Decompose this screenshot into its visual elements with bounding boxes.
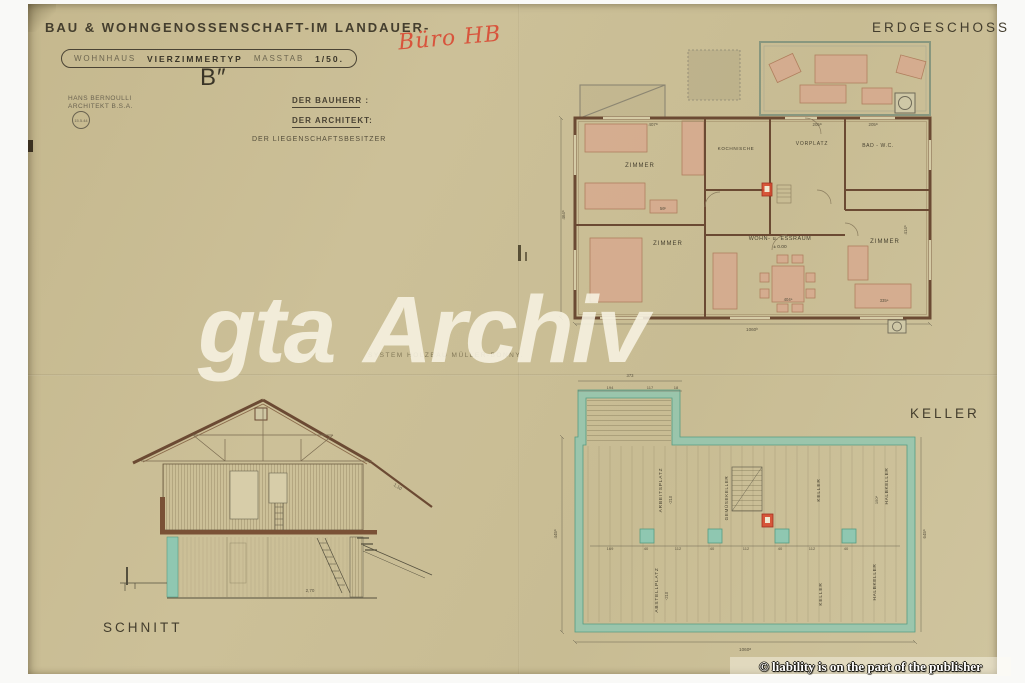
dim-label: 645ᵃ [922,529,927,538]
besitzer-signature-line: DER LIEGENSCHAFTSBESITZER [252,136,386,143]
dim-label: 407ᵃ [649,122,658,127]
dim-label: 1060ᵃ [739,647,751,652]
variant-letter: B″ [200,64,227,92]
wohnhaus-label: WOHNHAUS [74,54,136,63]
scanned-drawing-page: { "colors": { "paper": "#c9bd95", "ink":… [0,0,1025,683]
architect-name: HANS BERNOULLI [68,95,133,103]
depth-annotation: -210 [664,591,669,600]
scale-value: 1/50. [315,54,344,64]
dim-label: 112 [809,546,816,551]
dim-label: 335ᵃ [880,298,889,303]
dim-label: 414ᵃ [903,225,908,234]
keller-stair [732,467,762,511]
room-label-gemuesekeller: GEMÜSEKELLER [723,476,729,521]
date-stamp: 15.5.44 [72,111,90,129]
schnitt-section: 1,10 2,70 [105,385,435,645]
room-label-halbkeller-s: HALBKELLER [872,564,878,601]
architekt-signature-line: DER ARCHITEKT: [292,116,373,125]
eg-cellar-stair [777,185,791,203]
gta-archiv-watermark: gta Archiv [198,276,647,385]
eg-exterior-fixture [888,320,906,333]
dim-label: 2,70 [306,588,315,593]
dim-label: 18 [674,385,679,390]
dim-label: 404ᵃ [784,297,793,302]
dim-label: 150ᵃ [874,495,879,504]
sheet-title: BAU & WOHNGENOSSENSCHAFT-IM LANDAUER- [45,20,430,35]
fold-registration-mark [518,245,521,261]
room-label-bad-wc: BAD - W.C. [862,143,894,149]
room-label-kochnische: KOCHNISCHE [718,146,755,151]
room-label-zimmer-se: ZIMMER [870,239,900,245]
fold-registration-mark [525,252,527,261]
room-label-keller-s: KELLER [818,582,824,605]
sheet-edge-notch [28,140,33,152]
bauherr-signature-line: DER BAUHERR : [292,96,369,105]
keller-heater [762,514,773,527]
room-label-halbkeller-n: HALBKELLER [884,468,890,505]
dim-label: 194 [607,385,614,390]
keller-plan: 373 194 117 18 ARBEITSPLATZ -210 GEMÜSEK… [550,368,930,668]
dim-label: 205ᵃ [869,122,878,127]
section-main-floor [163,464,363,530]
eg-porches [580,42,930,118]
dim-label: 205ᵃ [813,122,822,127]
dim-label: 40 [644,546,649,551]
room-label-abstellplatz: ABSTELLPLATZ [654,567,660,612]
publisher-note: © liability is on the part of the publis… [730,657,1011,676]
room-label-wohn-essraum: WOHN- u. ESSRAUM [749,236,812,242]
dim-label: 464ᵃ [561,210,566,219]
architect-title: ARCHITEKT B.S.A. [68,103,133,111]
dim-label: 117 [647,385,654,390]
type-label: VIERZIMMERTYP [147,54,243,64]
signature-underline [292,127,360,128]
dim-label: 112 [675,546,682,551]
room-label-keller-n: KELLER [816,478,822,501]
level-annotation: ± 0.00 [773,244,787,250]
erdgeschoss-title: ERDGESCHOSS [872,20,1010,35]
dim-label: 112 [743,546,750,551]
dim-label: 40 [778,546,783,551]
dim-label: 56ᵇ [660,206,667,211]
signature-underline [292,107,360,108]
room-label-arbeitsplatz: ARBEITSPLATZ [658,468,664,513]
section-basement [167,537,377,598]
eg-doors [705,118,858,250]
eg-stove [762,183,772,196]
dim-label: 169 [607,546,614,551]
depth-annotation: -210 [668,495,673,504]
room-label-vorplatz: VORPLATZ [796,141,828,147]
room-label-zimmer-nw: ZIMMER [625,163,655,169]
room-label-zimmer-sw: ZIMMER [653,241,683,247]
dim-label: 1060ᵇ [746,327,758,332]
dim-label: 40 [710,546,715,551]
masstab-label: MASSTAB [254,54,304,63]
architect-name-block: HANS BERNOULLI ARCHITEKT B.S.A. [68,95,133,111]
drawing-sheet: BAU & WOHNGENOSSENSCHAFT-IM LANDAUER- WO… [28,4,997,674]
dim-label: 445ᵃ [553,529,558,538]
dim-label: 40 [844,546,849,551]
